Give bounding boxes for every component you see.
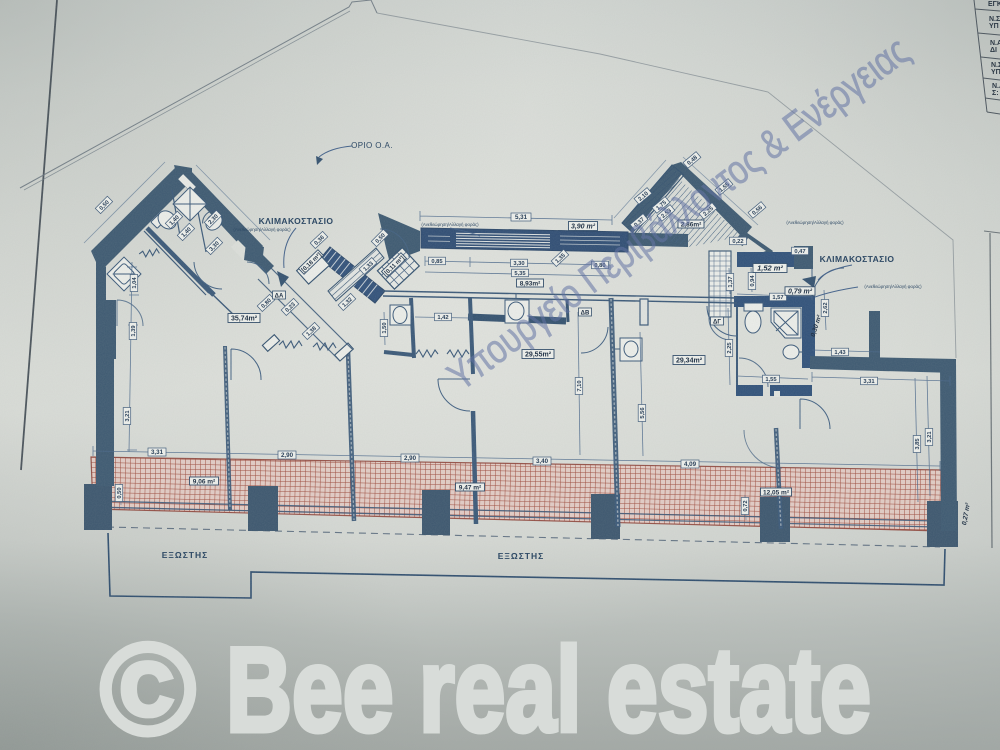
- svg-text:Bee real estate: Bee real estate: [226, 623, 871, 750]
- svg-text:©: ©: [100, 616, 196, 750]
